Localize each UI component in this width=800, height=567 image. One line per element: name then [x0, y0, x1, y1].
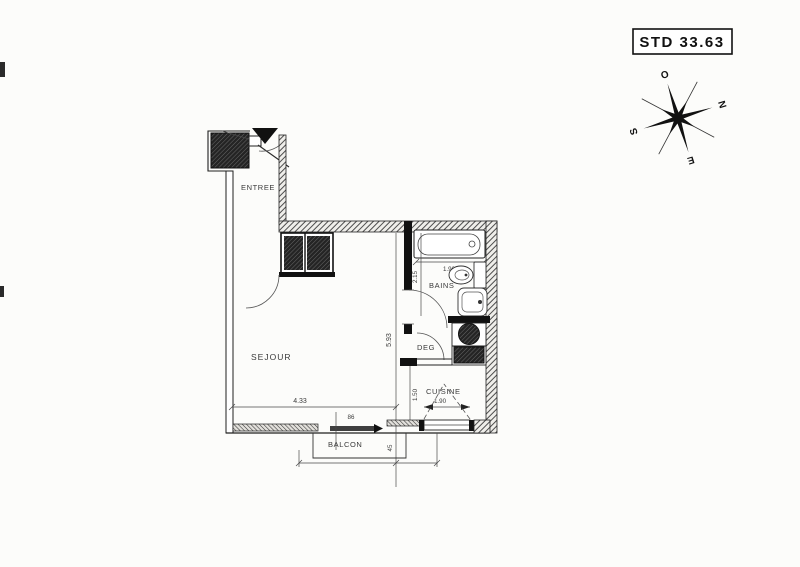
- scanned-floorplan-sheet: STD 33.63 O N S E ENTREE: [0, 0, 800, 567]
- closet-cell-left: [284, 236, 303, 270]
- room-label-sejour: SEJOUR: [251, 352, 291, 362]
- toilet-dot: [465, 274, 468, 277]
- kitchen-stove: [454, 347, 484, 363]
- dim-sejour-width: 4.33: [293, 398, 307, 405]
- kitchen-counter: [448, 316, 490, 365]
- bath-kitchen-wall: [448, 316, 490, 323]
- sliding-door-panel-a: [330, 426, 374, 431]
- room-label-entree: ENTREE: [241, 183, 275, 192]
- toilet-tank: [474, 262, 486, 288]
- dim-sejour-depth: 5.93: [386, 333, 393, 347]
- window-jamb-left: [419, 420, 424, 431]
- dim-kitchen-width: 1.90: [434, 398, 447, 405]
- right-wall: [486, 221, 497, 433]
- dim-balcony-depth: 45: [387, 444, 394, 451]
- unit-label: STD 33.63: [639, 34, 724, 51]
- room-label-bains: BAINS: [429, 281, 455, 290]
- corner-wall: [474, 420, 490, 433]
- deg-kitchen-wall-block: [400, 358, 417, 366]
- paper-background: [0, 0, 800, 567]
- floorplan-drawing: STD 33.63 O N S E ENTREE: [0, 0, 800, 567]
- closet-front-band: [279, 272, 335, 277]
- partition-block: [404, 324, 412, 334]
- corridor-right-wall: [279, 135, 286, 223]
- bath-left-wall: [404, 221, 412, 290]
- room-label-cuisine: CUISINE: [426, 387, 461, 396]
- room-label-deg: DEG: [417, 343, 435, 352]
- dim-kitchen-depth: 1.50: [412, 388, 419, 401]
- title-box: STD 33.63: [633, 29, 732, 54]
- dim-bath-depth: 2.15: [412, 270, 419, 283]
- left-wall: [226, 171, 233, 433]
- washbasin-tap: [478, 300, 482, 304]
- kitchen-sink: [459, 324, 480, 345]
- dim-bay-door: 86: [348, 414, 355, 421]
- entry-door-frame: [249, 136, 261, 146]
- sejour-window: [233, 424, 318, 431]
- room-label-balcon: BALCON: [328, 440, 362, 449]
- closet-cell-right: [307, 236, 330, 270]
- entry-wall-block: [211, 133, 249, 168]
- window-jamb-right: [469, 420, 474, 431]
